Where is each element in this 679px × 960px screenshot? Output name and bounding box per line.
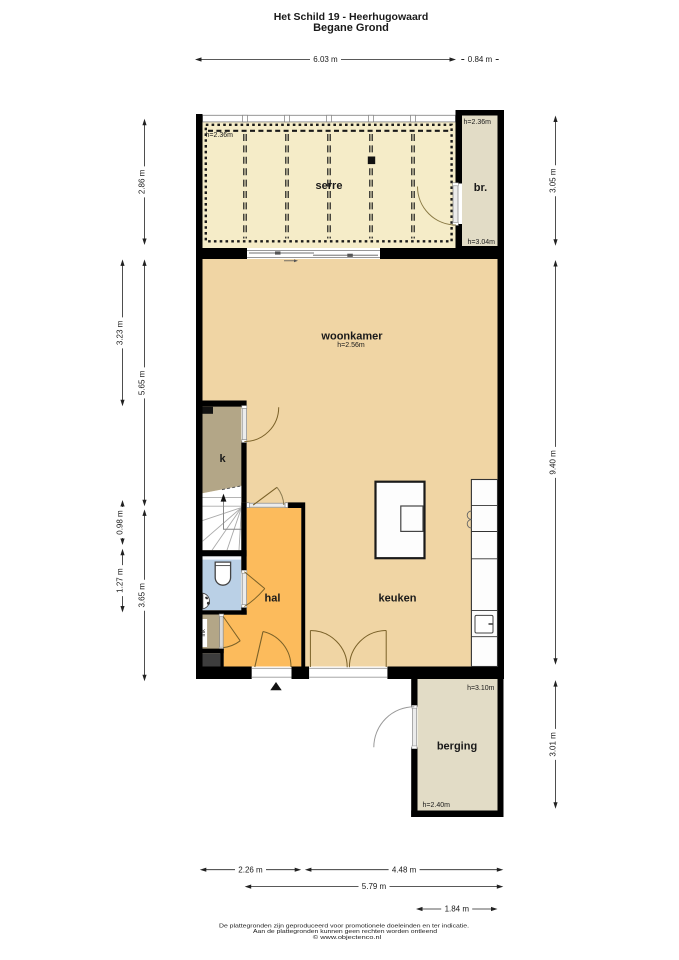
- svg-text:2.86 m: 2.86 m: [138, 169, 147, 194]
- svg-text:0.84 m: 0.84 m: [468, 55, 493, 64]
- svg-text:berging: berging: [437, 741, 477, 753]
- svg-text:2.26 m: 2.26 m: [238, 865, 263, 874]
- svg-text:keuken: keuken: [379, 593, 417, 605]
- svg-text:© www.objectenco.nl: © www.objectenco.nl: [313, 934, 382, 941]
- svg-text:h=2.56m: h=2.56m: [337, 342, 365, 349]
- svg-text:0.98 m: 0.98 m: [116, 510, 125, 535]
- svg-text:5.65 m: 5.65 m: [138, 370, 147, 395]
- svg-text:1.27 m: 1.27 m: [116, 568, 125, 593]
- svg-text:4.48 m: 4.48 m: [392, 865, 417, 874]
- svg-text:mk: mk: [201, 629, 207, 637]
- svg-text:3.01 m: 3.01 m: [549, 732, 558, 757]
- svg-text:h=2.36m: h=2.36m: [464, 119, 492, 126]
- svg-text:hal: hal: [265, 593, 281, 605]
- svg-text:5.79 m: 5.79 m: [362, 882, 387, 891]
- svg-text:woonkamer: woonkamer: [320, 331, 383, 343]
- svg-text:k: k: [219, 453, 226, 465]
- svg-text:serre: serre: [316, 180, 343, 192]
- svg-text:3.23 m: 3.23 m: [116, 320, 125, 345]
- svg-text:h=2.36m: h=2.36m: [206, 132, 234, 139]
- svg-text:h=3.10m: h=3.10m: [467, 685, 495, 692]
- svg-text:h=2.40m: h=2.40m: [423, 802, 451, 809]
- svg-text:3.05 m: 3.05 m: [549, 168, 558, 193]
- svg-text:Begane Grond: Begane Grond: [313, 22, 389, 34]
- svg-text:h=3.04m: h=3.04m: [468, 239, 496, 246]
- svg-text:9.40 m: 9.40 m: [549, 450, 558, 475]
- svg-text:1.84 m: 1.84 m: [445, 905, 470, 914]
- svg-text:6.03 m: 6.03 m: [313, 55, 338, 64]
- svg-text:3.65 m: 3.65 m: [138, 583, 147, 608]
- svg-text:br.: br.: [474, 182, 487, 194]
